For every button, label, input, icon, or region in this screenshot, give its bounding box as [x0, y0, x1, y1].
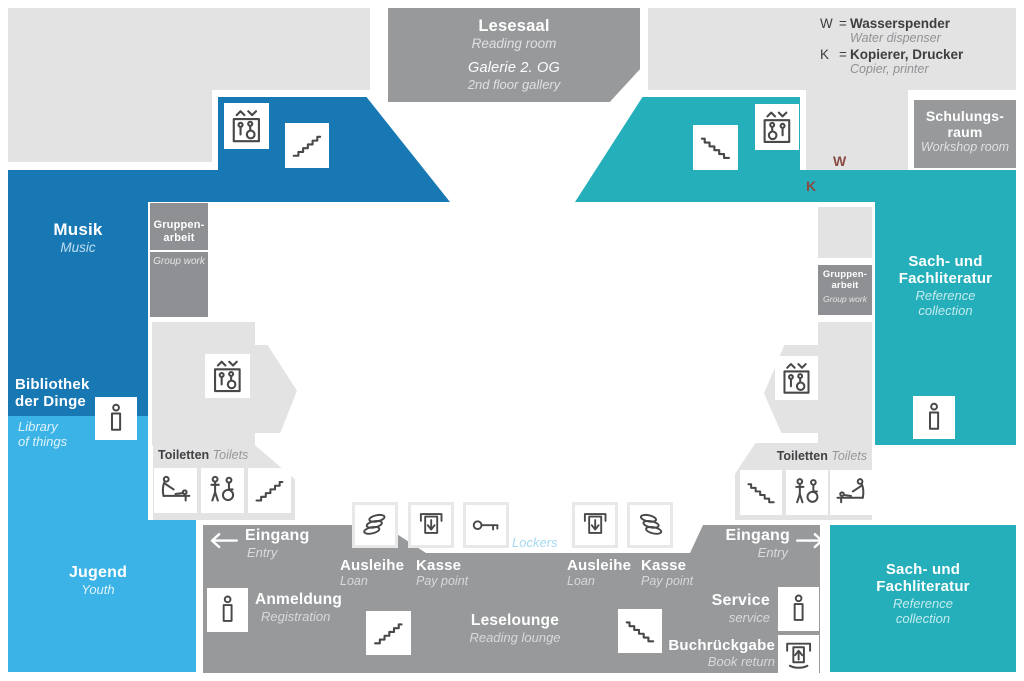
lesesaal-label-de: Lesesaal: [388, 17, 640, 36]
baby-changing-right: [830, 470, 872, 515]
key-icon: [469, 508, 503, 542]
entrance-left-label: Eingang Entry: [245, 527, 310, 560]
stairs-top-left: [285, 123, 329, 168]
entrance-left-arrow: [208, 531, 240, 555]
legend-copier-eq: =: [836, 47, 850, 62]
locker-pay-machine-left: [408, 502, 454, 548]
legend-water-de: Wasserspender: [850, 16, 950, 31]
copier-marker: K: [806, 178, 816, 194]
entrance-right-arrow: [794, 531, 826, 555]
legend-copier-key: K: [820, 47, 836, 62]
sach-lower-de1: Sach- und: [830, 561, 1016, 578]
anmeldung-label: Anmeldung Registration: [255, 591, 342, 624]
info-icon: [916, 399, 952, 436]
elevator-icon: [227, 106, 266, 146]
locker-media-stack-left: [352, 502, 398, 548]
gruppenarbeit-left-divider: [150, 250, 208, 252]
info-point-reference: [913, 396, 955, 439]
kasse-left-label: Kasse Pay point: [416, 557, 468, 588]
lesesaal-label-en: Reading room: [388, 36, 640, 51]
eingang-label-de: Eingang: [690, 527, 790, 545]
pay-machine-icon: [414, 508, 448, 542]
galerie-label-en: 2nd floor gallery: [388, 77, 640, 92]
accessible-toilet-icon: [789, 473, 825, 512]
baby-changing-icon: [833, 473, 869, 512]
lockers-label: Lockers: [512, 535, 576, 550]
leselounge-label-de: Leselounge: [440, 612, 590, 630]
kasse-label-en: Pay point: [641, 574, 693, 588]
legend-copier-de: Kopierer, Drucker: [850, 47, 963, 62]
stairs-down-icon: [743, 473, 779, 512]
kasse-right-label: Kasse Pay point: [641, 557, 693, 588]
leselounge-label: Leselounge Reading lounge: [440, 612, 590, 645]
top-left-gray-area-lower: [8, 8, 212, 162]
legend-water-en: Water dispenser: [850, 31, 1016, 45]
library-floor-plan: Lesesaal Reading room Galerie 2. OG 2nd …: [0, 0, 1024, 681]
stairs-down-icon: [696, 128, 735, 167]
gruppenarbeit-right-en: Group work: [818, 294, 872, 304]
stairs-up-icon: [369, 614, 408, 652]
kasse-label-de: Kasse: [416, 557, 468, 574]
info-point-anmeldung: [207, 588, 248, 632]
legend-water-row: W = Wasserspender: [820, 16, 1016, 31]
arrow-right-icon: [794, 531, 826, 550]
gruppenarbeit-left-de2: arbeit: [150, 232, 208, 245]
elevator-mid-right: [775, 356, 818, 400]
ausleihe-label-en: Loan: [567, 574, 631, 588]
service-label-de: Service: [680, 592, 770, 610]
kasse-label-de: Kasse: [641, 557, 693, 574]
kasse-label-en: Pay point: [416, 574, 468, 588]
pay-machine-icon: [578, 508, 612, 542]
toiletten-label-de: Toiletten: [158, 448, 209, 462]
musik-label-en: Music: [8, 240, 148, 255]
stairs-bottom-left: [366, 611, 411, 655]
sach-upper-en1: Reference: [875, 288, 1016, 303]
schulungsraum-label-de2: raum: [914, 124, 1016, 140]
legend-copier-en: Copier, printer: [850, 62, 1016, 76]
elevator-icon: [758, 107, 796, 147]
schulungsraum-label-de1: Schulungs-: [914, 108, 1016, 124]
service-label: Service service: [680, 592, 770, 625]
stairs-up-icon: [251, 471, 288, 510]
water-dispenser-marker: W: [833, 153, 846, 169]
entrance-right-label: Eingang Entry: [690, 527, 790, 560]
info-icon: [98, 400, 134, 437]
toiletten-label-en: Toilets: [831, 449, 867, 463]
media-stack-icon: [633, 508, 667, 542]
room-musik: Musik Music: [8, 220, 148, 255]
left-corridor-pocket: [255, 345, 297, 433]
stairs-up-icon: [288, 126, 326, 165]
sach-upper-de1: Sach- und: [875, 253, 1016, 270]
sach-lower-de2: Fachliteratur: [830, 578, 1016, 595]
stairs-top-right: [693, 125, 738, 170]
locker-pay-machine-right: [572, 502, 618, 548]
eingang-label-en: Entry: [247, 545, 310, 560]
buchrueckgabe-label: Buchrückgabe Book return: [650, 637, 775, 669]
ausleihe-left-label: Ausleihe Loan: [340, 557, 404, 588]
toilets-right-label: Toiletten Toilets: [757, 449, 867, 463]
baby-changing-left: [154, 468, 197, 513]
stairs-toilets-left: [248, 468, 291, 513]
room-sach-upper: Sach- und Fachliteratur Reference collec…: [875, 253, 1016, 318]
right-corridor-lower: [818, 322, 872, 445]
room-jugend: Jugend Youth: [8, 564, 188, 597]
gruppenarbeit-left-de1: Gruppen-: [150, 219, 208, 232]
buchrueckgabe-label-en: Book return: [650, 654, 775, 669]
room-schulungsraum: Schulungs- raum Workshop room: [914, 100, 1016, 168]
toiletten-label-de: Toiletten: [777, 449, 828, 463]
book-return-icon: [781, 638, 816, 674]
room-sach-lower: Sach- und Fachliteratur Reference collec…: [830, 561, 1016, 626]
ausleihe-label-en: Loan: [340, 574, 404, 588]
accessible-toilet-left: [201, 468, 244, 513]
buchrueckgabe-label-de: Buchrückgabe: [650, 637, 775, 654]
sach-upper-en2: collection: [875, 303, 1016, 318]
stairs-toilets-right: [740, 470, 782, 515]
right-corridor-upper: [818, 207, 872, 258]
leselounge-label-en: Reading lounge: [440, 630, 590, 645]
info-icon: [210, 591, 245, 629]
ausleihe-label-de: Ausleihe: [567, 557, 631, 574]
toilets-left-label: Toiletten Toilets: [158, 448, 248, 462]
room-gruppenarbeit-right: Gruppen- arbeit Group work: [818, 265, 872, 315]
eingang-label-de: Eingang: [245, 527, 310, 545]
eingang-label-en: Entry: [690, 545, 788, 560]
bibliothek-label-de1: Bibliothek: [15, 376, 135, 393]
anmeldung-label-en: Registration: [261, 609, 342, 624]
ausleihe-label-de: Ausleihe: [340, 557, 404, 574]
info-point-service: [778, 587, 819, 631]
accessible-toilet-right: [786, 470, 828, 515]
toiletten-label-en: Toilets: [213, 448, 249, 462]
legend-water-key: W: [820, 16, 836, 31]
reference-wing-band: [800, 170, 1016, 202]
elevator-icon: [778, 359, 815, 397]
elevator-top-right: [755, 104, 799, 150]
legend: W = Wasserspender Water dispenser K = Ko…: [820, 16, 1016, 76]
gruppenarbeit-right-de2: arbeit: [818, 281, 872, 292]
info-icon: [781, 590, 816, 628]
sach-upper-de2: Fachliteratur: [875, 270, 1016, 287]
jugend-label-en: Youth: [8, 582, 188, 597]
book-return-station: [778, 635, 819, 677]
galerie-label-de: Galerie 2. OG: [388, 60, 640, 77]
info-point-bibliothek: [95, 397, 137, 440]
elevator-mid-left: [205, 354, 250, 398]
schulungsraum-label-en: Workshop room: [914, 140, 1016, 154]
legend-water-eq: =: [836, 16, 850, 31]
gruppenarbeit-left-en: Group work: [150, 256, 208, 267]
anmeldung-label-de: Anmeldung: [255, 591, 342, 609]
arrow-left-icon: [208, 531, 240, 550]
musik-label-de: Musik: [8, 220, 148, 240]
locker-media-stack-right: [627, 502, 673, 548]
room-lesesaal: Lesesaal Reading room Galerie 2. OG 2nd …: [388, 8, 640, 102]
media-stack-icon: [358, 508, 392, 542]
baby-changing-icon: [157, 471, 194, 510]
locker-key: [463, 502, 509, 548]
service-label-en: service: [680, 610, 770, 625]
musik-wing-band: [8, 170, 218, 202]
accessible-toilet-icon: [204, 471, 241, 510]
room-gruppenarbeit-left: Gruppen- arbeit Group work: [150, 203, 208, 317]
elevator-icon: [208, 357, 247, 395]
legend-copier-row: K = Kopierer, Drucker: [820, 47, 1016, 62]
elevator-top-left: [224, 103, 269, 149]
sach-lower-en2: collection: [830, 611, 1016, 626]
sach-lower-en1: Reference: [830, 596, 1016, 611]
ausleihe-right-label: Ausleihe Loan: [567, 557, 631, 588]
jugend-label-de: Jugend: [8, 564, 188, 582]
